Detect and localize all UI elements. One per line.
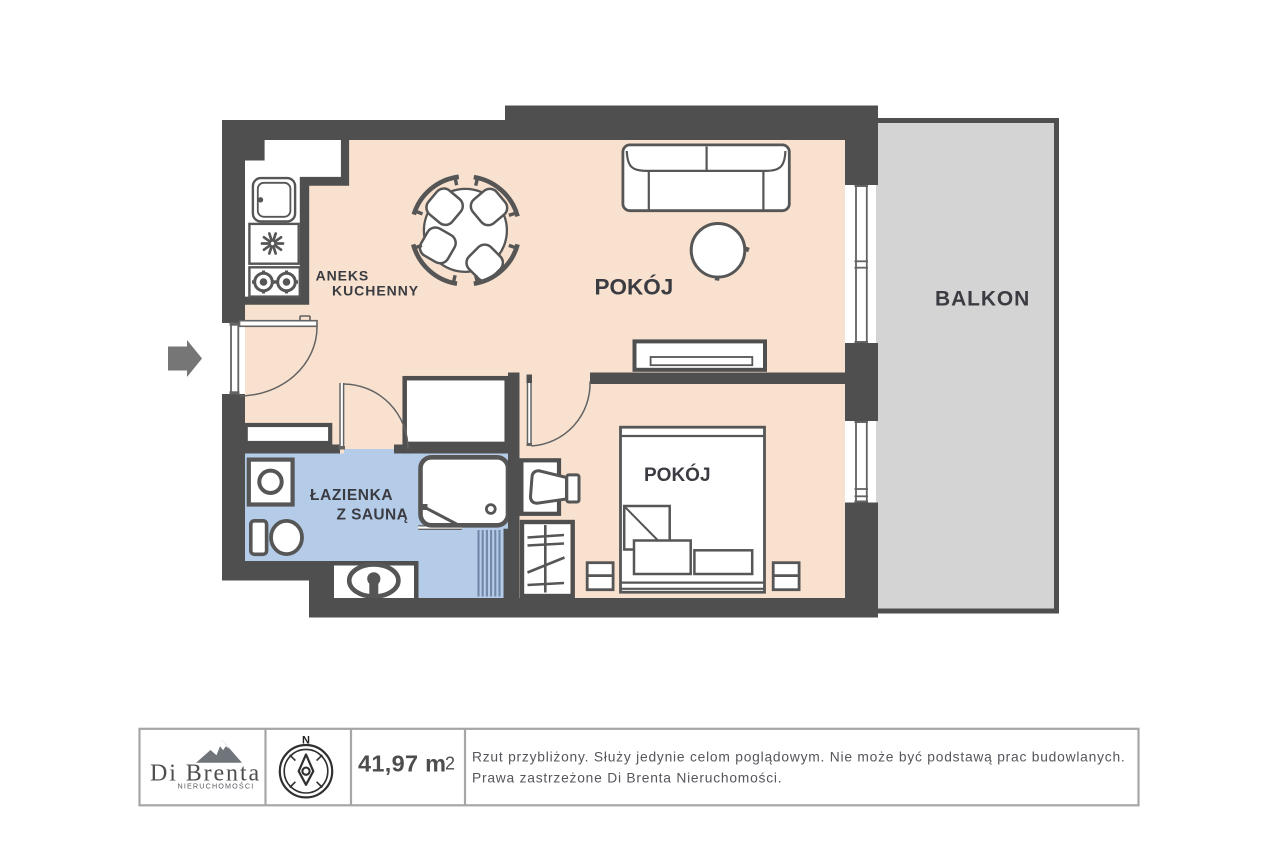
svg-text:POKÓJ: POKÓJ xyxy=(644,464,711,486)
svg-text:Prawa zastrzeżone Di Brenta Ni: Prawa zastrzeżone Di Brenta Nieruchomośc… xyxy=(472,770,782,785)
svg-text:KUCHENNY: KUCHENNY xyxy=(332,283,419,299)
svg-text:41,97 m: 41,97 m xyxy=(358,751,446,777)
svg-text:POKÓJ: POKÓJ xyxy=(595,275,674,300)
svg-text:N: N xyxy=(302,735,310,747)
svg-text:NIERUCHOMOŚCI: NIERUCHOMOŚCI xyxy=(178,781,255,790)
svg-text:2: 2 xyxy=(445,754,455,774)
svg-text:ANEKS: ANEKS xyxy=(316,268,370,284)
svg-text:BALKON: BALKON xyxy=(935,287,1030,310)
svg-text:ŁAZIENKA: ŁAZIENKA xyxy=(310,487,393,504)
svg-text:Rzut przybliżony. Służy jedyni: Rzut przybliżony. Służy jedynie celom po… xyxy=(472,750,1126,765)
svg-text:Z SAUNĄ: Z SAUNĄ xyxy=(337,506,409,523)
